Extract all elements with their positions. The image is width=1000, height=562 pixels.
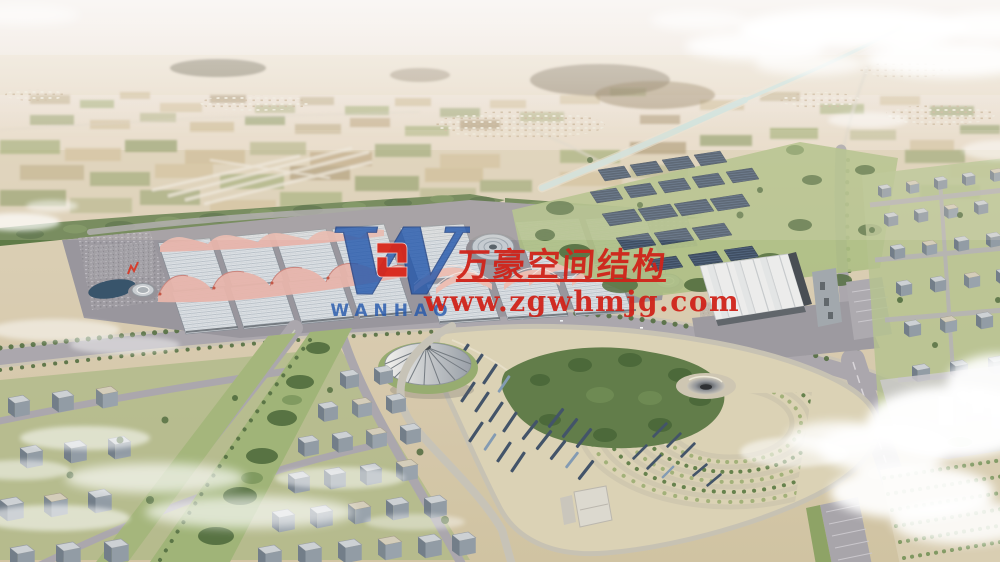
aerial-rendering: W WANHAO 万豪空间结构 www.zgwhmjg.com: [0, 0, 1000, 562]
scene-canvas: [0, 0, 1000, 562]
